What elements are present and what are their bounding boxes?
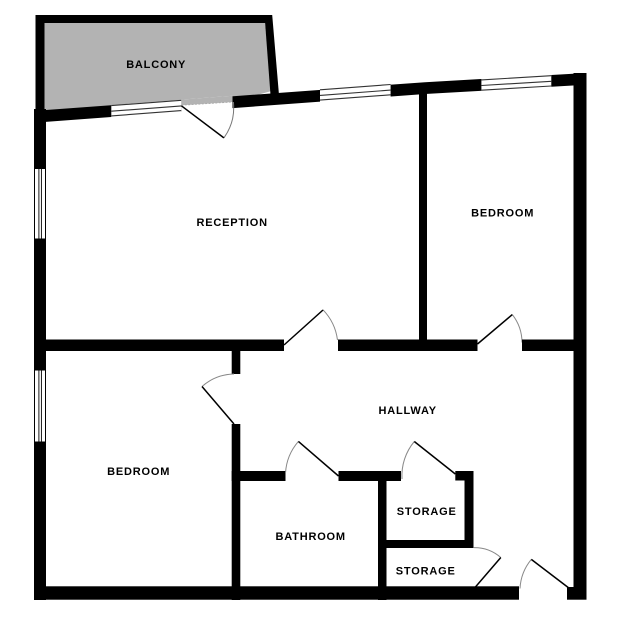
svg-text:RECEPTION: RECEPTION (197, 217, 268, 229)
svg-text:BEDROOM: BEDROOM (107, 466, 170, 478)
svg-text:BATHROOM: BATHROOM (276, 531, 346, 543)
svg-text:STORAGE: STORAGE (397, 506, 457, 518)
svg-text:HALLWAY: HALLWAY (379, 405, 437, 417)
svg-text:BALCONY: BALCONY (126, 59, 186, 71)
svg-text:BEDROOM: BEDROOM (471, 207, 534, 219)
svg-text:STORAGE: STORAGE (396, 566, 456, 578)
